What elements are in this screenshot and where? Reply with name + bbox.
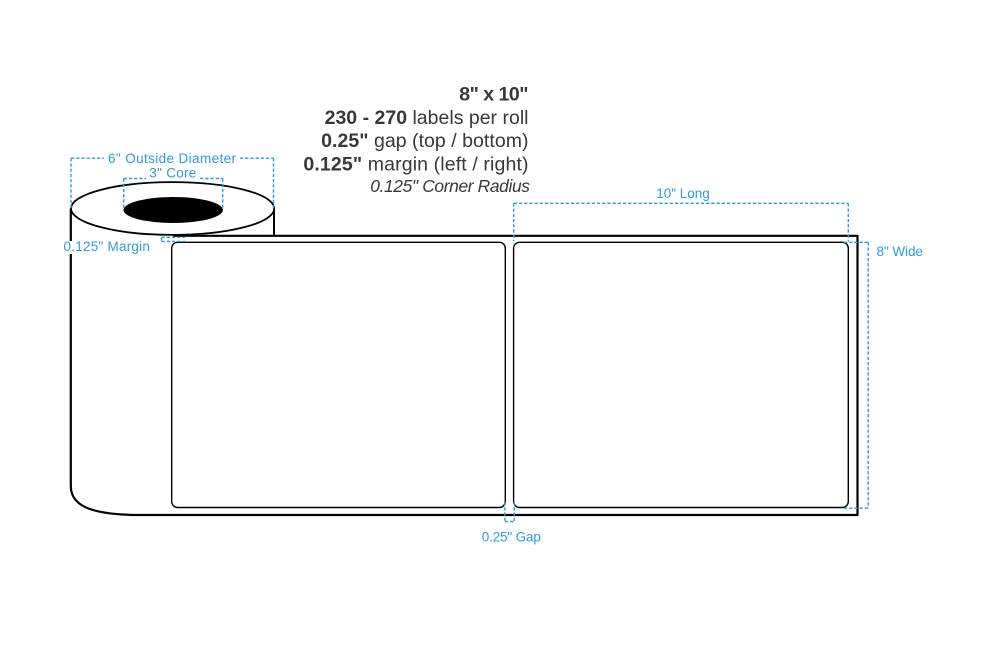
svg-text:0.125" Margin: 0.125" Margin <box>64 239 150 254</box>
svg-text:0.25" gap (top / bottom): 0.25" gap (top / bottom) <box>321 130 528 152</box>
svg-text:8" x 10": 8" x 10" <box>459 84 528 106</box>
svg-text:6" Outside Diameter: 6" Outside Diameter <box>108 151 237 166</box>
svg-text:3" Core: 3" Core <box>149 166 196 181</box>
svg-text:8" Wide: 8" Wide <box>877 244 923 259</box>
svg-text:0.125" margin (left / right): 0.125" margin (left / right) <box>303 153 528 175</box>
svg-text:230 - 270 labels per roll: 230 - 270 labels per roll <box>325 107 529 129</box>
svg-text:0.125" Corner Radius: 0.125" Corner Radius <box>370 176 530 196</box>
svg-text:0.25" Gap: 0.25" Gap <box>482 529 541 544</box>
svg-text:10" Long: 10" Long <box>656 186 710 201</box>
